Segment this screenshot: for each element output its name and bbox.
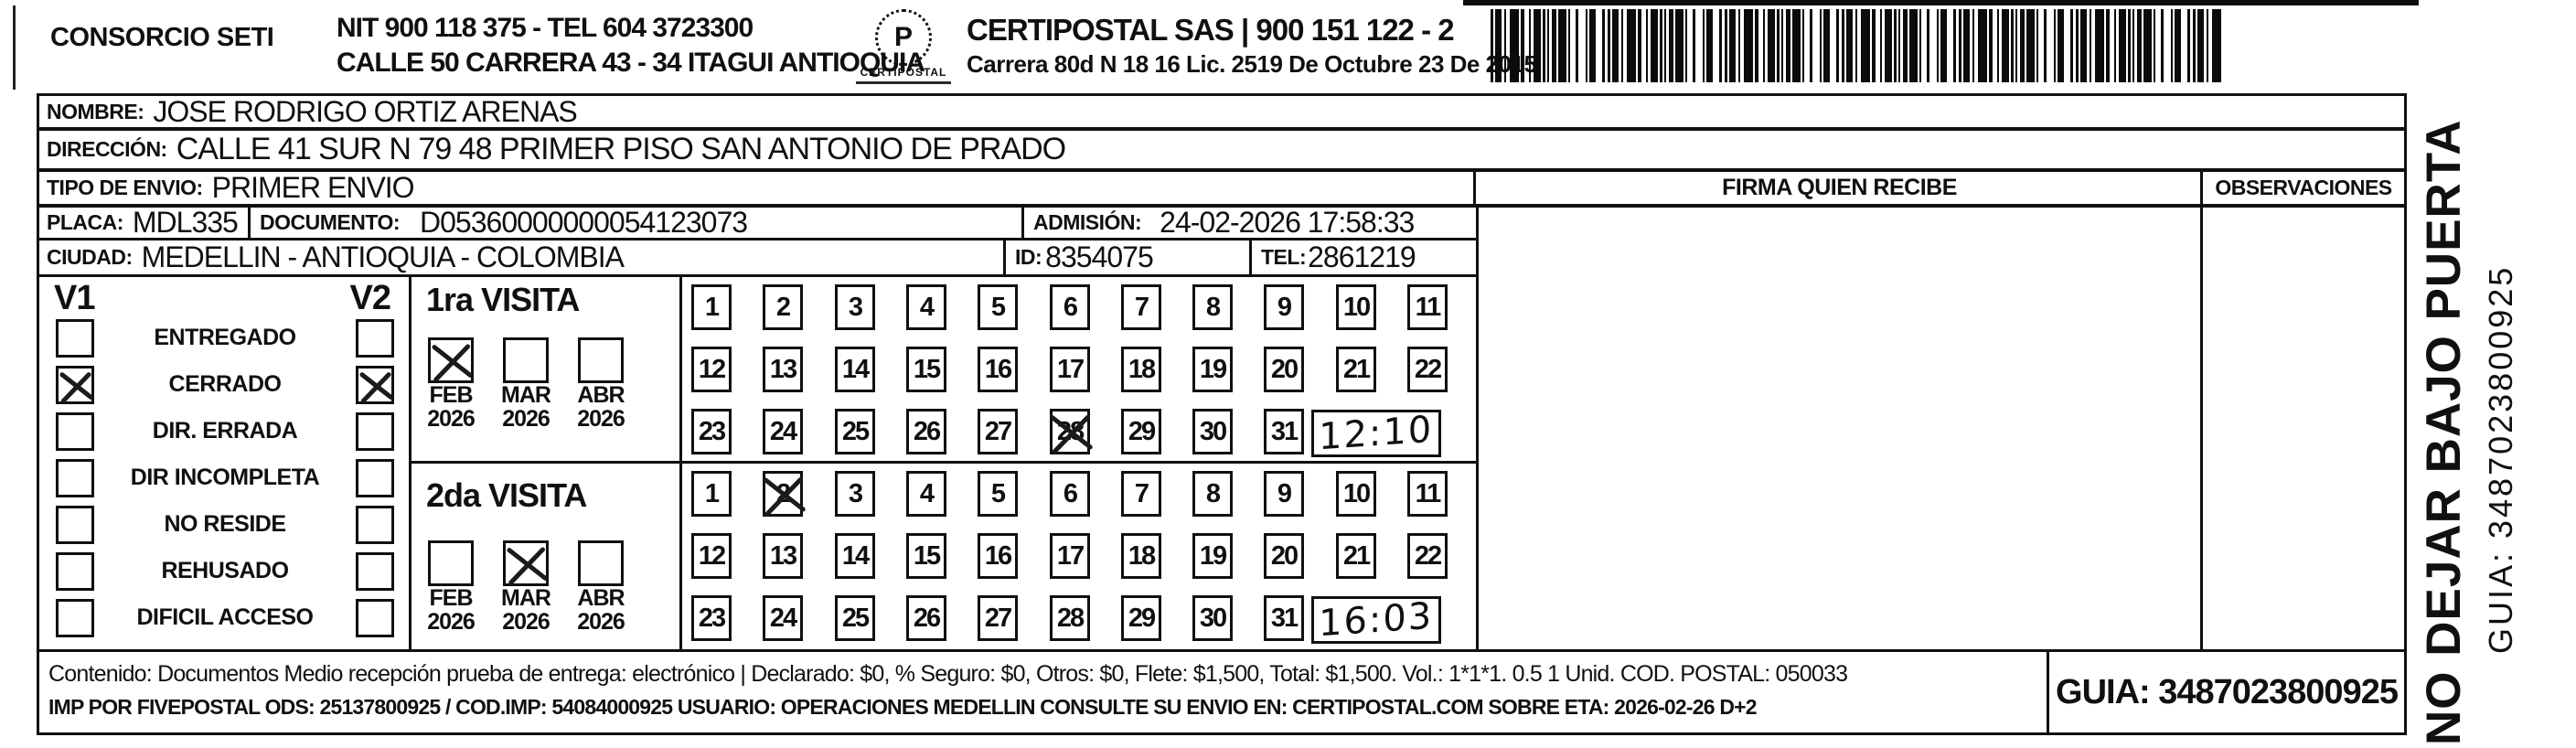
- status-rows: ENTREGADOCERRADODIR. ERRADADIR INCOMPLET…: [39, 315, 409, 641]
- visit-1-months-panel: 1ra VISITA FEB2026MAR2026ABR2026: [412, 277, 682, 461]
- placa-label: PLACA:: [47, 210, 123, 235]
- placa-cell: PLACA: MDL335: [37, 205, 251, 240]
- barcode-bar: [1646, 9, 1648, 82]
- day-box-31: 31: [1264, 409, 1304, 454]
- barcode-bar: [2137, 9, 2142, 82]
- barcode-bar: [2036, 9, 2038, 82]
- status-row-rehusado: REHUSADO: [39, 548, 409, 594]
- barcode-bar: [2015, 9, 2017, 82]
- barcode-bar: [2070, 9, 2073, 82]
- barcode-bar: [1909, 9, 1918, 82]
- barcode-bar: [1568, 9, 1570, 82]
- status-label-entregado: ENTREGADO: [94, 325, 356, 351]
- day-box-7: 7: [1121, 284, 1161, 330]
- day-box-8: 8: [1192, 284, 1233, 330]
- day-box-1: 1: [691, 284, 732, 330]
- day-box-15: 15: [906, 347, 946, 392]
- status-row-cerrado: CERRADO: [39, 361, 409, 408]
- ciudad-value: MEDELLIN - ANTIOQUIA - COLOMBIA: [142, 240, 624, 274]
- barcode-bar: [1768, 9, 1775, 82]
- observaciones-header-cell: OBSERVACIONES: [2200, 169, 2407, 207]
- barcode-bar: [1651, 9, 1658, 82]
- documento-value: D05360000000054123073: [420, 206, 747, 240]
- barcode-bar: [2212, 9, 2221, 82]
- day-box-23: 23: [691, 409, 732, 454]
- month-abr: ABR2026: [576, 540, 625, 634]
- barcode-bar: [1755, 9, 1758, 82]
- company-line: CERTIPOSTAL SAS | 900 151 122 - 2: [967, 13, 1454, 48]
- day-box-24: 24: [763, 409, 803, 454]
- day-box-27: 27: [978, 595, 1018, 641]
- day-box-23: 23: [691, 595, 732, 641]
- barcode-bar: [1898, 9, 1900, 82]
- barcode-bar: [1534, 9, 1541, 82]
- month-label: ABR: [576, 586, 625, 610]
- barcode-bar: [1669, 9, 1673, 82]
- day-box-17: 17: [1050, 533, 1090, 579]
- barcode-bar: [2044, 9, 2047, 82]
- barcode-bar: [1638, 9, 1641, 82]
- visit-time-box: 12:10: [1311, 410, 1441, 457]
- barcode-bar: [1978, 9, 1987, 82]
- barcode-bar: [1846, 9, 1853, 82]
- barcode-bar: [1744, 9, 1753, 82]
- barcode-bar: [2143, 9, 2152, 82]
- v1-checkbox-cerrado: [56, 366, 94, 404]
- month-mar: MAR2026: [501, 540, 550, 634]
- admision-cell: ADMISIÓN: 24-02-2026 17:58:33: [1021, 205, 1479, 240]
- v1-checkbox-no-reside: [56, 506, 94, 544]
- barcode-bar: [1725, 9, 1727, 82]
- month-checkbox-mar: [503, 540, 549, 586]
- barcode-bar: [1495, 9, 1502, 82]
- barcode-bar: [2193, 9, 2196, 82]
- scan-top-line: [1463, 0, 2419, 5]
- status-label-no-reside: NO RESIDE: [94, 511, 356, 538]
- day-box-26: 26: [906, 409, 946, 454]
- day-box-3: 3: [835, 471, 875, 517]
- day-box-30: 30: [1192, 595, 1233, 641]
- day-box-19: 19: [1192, 533, 1233, 579]
- v2-checkbox-dir-incompleta: [356, 459, 394, 497]
- guia-box: GUIA: 3487023800925: [2047, 649, 2407, 735]
- day-box-16: 16: [978, 533, 1018, 579]
- barcode-bar: [1855, 9, 1857, 82]
- barcode-bar: [1777, 9, 1780, 82]
- waybill-document: CONSORCIO SETI NIT 900 118 375 - TEL 604…: [0, 0, 2576, 748]
- v2-checkbox-cerrado: [356, 366, 394, 404]
- visit-2-months-row: FEB2026MAR2026ABR2026: [426, 540, 679, 634]
- v2-checkbox-no-reside: [356, 506, 394, 544]
- month-label: FEB: [426, 383, 476, 407]
- handwritten-time: 16:03: [1320, 595, 1434, 646]
- day-box-14: 14: [835, 347, 875, 392]
- barcode-bar: [1997, 9, 1999, 82]
- visit-1-days-grid: 1234567891011121314151617181920212223242…: [682, 277, 1476, 461]
- visit-time-box: 16:03: [1311, 596, 1441, 644]
- barcode-bar: [2002, 9, 2009, 82]
- barcode-bar: [2175, 9, 2181, 82]
- tel-label: TEL:: [1261, 245, 1306, 270]
- day-box-17: 17: [1050, 347, 1090, 392]
- v2-checkbox-dificil-acceso: [356, 599, 394, 637]
- day-box-15: 15: [906, 533, 946, 579]
- barcode-bar: [1823, 9, 1830, 82]
- v2-checkbox-rehusado: [356, 552, 394, 591]
- barcode-bar: [2080, 9, 2087, 82]
- barcode-bar: [2011, 9, 2014, 82]
- barcode-bar: [1963, 9, 1970, 82]
- firma-header: FIRMA QUIEN RECIBE: [1722, 175, 1957, 201]
- barcode-bar: [1792, 9, 1801, 82]
- status-label-dificil-acceso: DIFICIL ACCESO: [94, 604, 356, 631]
- admision-label: ADMISIÓN:: [1033, 210, 1141, 235]
- observaciones-header: OBSERVACIONES: [2215, 176, 2391, 200]
- barcode-bar: [1510, 9, 1519, 82]
- guia-box-value: GUIA: 3487023800925: [2056, 673, 2398, 712]
- status-panel: V1 V2 ENTREGADOCERRADODIR. ERRADADIR INC…: [37, 274, 412, 652]
- day-box-25: 25: [835, 409, 875, 454]
- day-box-18: 18: [1121, 533, 1161, 579]
- day-box-4: 4: [906, 471, 946, 517]
- firma-header-cell: FIRMA QUIEN RECIBE: [1473, 169, 2206, 207]
- barcode-bar: [1529, 9, 1531, 82]
- v1-checkbox-dificil-acceso: [56, 599, 94, 637]
- barcode-bar: [1521, 9, 1524, 82]
- status-label-dir-incompleta: DIR INCOMPLETA: [94, 465, 356, 491]
- placa-value: MDL335: [133, 206, 238, 240]
- barcode-bar: [1552, 9, 1556, 82]
- barcode-bar: [1885, 9, 1892, 82]
- barcode-bar: [1729, 9, 1736, 82]
- barcode-bar: [1706, 9, 1713, 82]
- v2-checkbox-entregado: [356, 319, 394, 358]
- barcode-bar: [2026, 9, 2035, 82]
- month-year: 2026: [426, 407, 476, 431]
- observaciones-body-cell: [2200, 205, 2407, 652]
- month-year: 2026: [576, 610, 625, 634]
- barcode-bar: [1894, 9, 1897, 82]
- day-box-14: 14: [835, 533, 875, 579]
- day-box-10: 10: [1336, 471, 1376, 517]
- barcode-bar: [1903, 9, 1908, 82]
- v2-header: V2: [350, 279, 390, 318]
- nombre-row: NOMBRE: JOSE RODRIGO ORTIZ ARENAS: [37, 93, 2407, 130]
- firma-body-cell: [1473, 205, 2206, 652]
- day-box-21: 21: [1336, 347, 1376, 392]
- day-box-9: 9: [1264, 284, 1304, 330]
- barcode-bar: [1612, 9, 1619, 82]
- month-abr: ABR2026: [576, 337, 625, 431]
- day-box-22: 22: [1407, 347, 1448, 392]
- barcode-bar: [1842, 9, 1844, 82]
- month-checkbox-abr: [578, 337, 624, 383]
- sender-address-line: CALLE 50 CARRERA 43 - 34 ITAGUI ANTIOQUI…: [337, 46, 925, 80]
- ciudad-cell: CIUDAD: MEDELLIN - ANTIOQUIA - COLOMBIA: [37, 238, 1006, 277]
- barcode-bar: [1972, 9, 1974, 82]
- v1-checkbox-dir-errada: [56, 412, 94, 451]
- tipo-envio-value: PRIMER ENVIO: [212, 171, 414, 205]
- certipostal-logo: P CERTIPOSTAL: [849, 9, 958, 84]
- day-box-5: 5: [978, 284, 1018, 330]
- v1-checkbox-dir-incompleta: [56, 459, 94, 497]
- barcode-bar: [1927, 9, 1929, 82]
- barcode-bar: [1586, 9, 1587, 82]
- barcode-bar: [1703, 9, 1705, 82]
- day-box-31: 31: [1264, 595, 1304, 641]
- month-checkbox-feb: [428, 337, 474, 383]
- day-box-26: 26: [906, 595, 946, 641]
- v2-checkbox-dir-errada: [356, 412, 394, 451]
- month-mar: MAR2026: [501, 337, 550, 431]
- logo-glyph: P: [894, 22, 913, 53]
- barcode-bar: [1719, 9, 1722, 82]
- barcode-bar: [2187, 9, 2190, 82]
- side-guia-text: GUIA: 3487023800925: [2482, 169, 2526, 654]
- month-label: FEB: [426, 586, 476, 610]
- day-box-30: 30: [1192, 409, 1233, 454]
- tipo-envio-cell: TIPO DE ENVIO: PRIMER ENVIO: [37, 169, 1479, 207]
- barcode-bar: [1880, 9, 1882, 82]
- day-box-4: 4: [906, 284, 946, 330]
- direccion-value: CALLE 41 SUR N 79 48 PRIMER PISO SAN ANT…: [176, 132, 1065, 167]
- day-box-9: 9: [1264, 471, 1304, 517]
- status-panel-headers: V1 V2: [39, 277, 409, 318]
- consorcio-name: CONSORCIO SETI: [50, 23, 273, 53]
- barcode-bar: [1861, 9, 1870, 82]
- day-box-24: 24: [763, 595, 803, 641]
- barcode-bar: [2106, 9, 2110, 82]
- day-box-20: 20: [1264, 347, 1304, 392]
- status-row-no-reside: NO RESIDE: [39, 501, 409, 548]
- day-box-11: 11: [1407, 284, 1448, 330]
- day-box-25: 25: [835, 595, 875, 641]
- status-row-dir-errada: DIR. ERRADA: [39, 408, 409, 454]
- day-box-28: 28: [1050, 595, 1090, 641]
- month-label: ABR: [576, 383, 625, 407]
- barcode-bar: [1660, 9, 1662, 82]
- barcode-bar: [1685, 9, 1687, 82]
- day-box-19: 19: [1192, 347, 1233, 392]
- day-box-28: 28: [1050, 409, 1090, 454]
- ciudad-label: CIUDAD:: [47, 245, 133, 270]
- v1-checkbox-rehusado: [56, 552, 94, 591]
- month-year: 2026: [501, 407, 550, 431]
- barcode-bar: [2020, 9, 2025, 82]
- v1-checkbox-entregado: [56, 319, 94, 358]
- barcode: [1491, 9, 2228, 82]
- day-box-11: 11: [1407, 471, 1448, 517]
- day-box-12: 12: [691, 533, 732, 579]
- day-box-21: 21: [1336, 533, 1376, 579]
- barcode-bar: [1491, 9, 1493, 82]
- visit-2-months-panel: 2da VISITA FEB2026MAR2026ABR2026: [412, 464, 682, 649]
- barcode-bar: [1589, 9, 1596, 82]
- visit-2-title: 2da VISITA: [426, 476, 679, 515]
- day-box-2: 2: [763, 471, 803, 517]
- day-box-5: 5: [978, 471, 1018, 517]
- barcode-bar: [1937, 9, 1939, 82]
- visit-1-section: 1ra VISITA FEB2026MAR2026ABR2026 1234567…: [409, 274, 1479, 464]
- barcode-bar: [1608, 9, 1610, 82]
- day-box-13: 13: [763, 533, 803, 579]
- sender-nit-line: NIT 900 118 375 - TEL 604 3723300: [337, 11, 753, 46]
- nombre-value: JOSE RODRIGO ORTIZ ARENAS: [153, 95, 576, 129]
- visit-2-section: 2da VISITA FEB2026MAR2026ABR2026 1234567…: [409, 461, 1479, 652]
- id-label: ID:: [1015, 245, 1042, 270]
- direccion-row: DIRECCIÓN: CALLE 41 SUR N 79 48 PRIMER P…: [37, 128, 2407, 171]
- barcode-bar: [1953, 9, 1956, 82]
- barcode-bar: [1959, 9, 1961, 82]
- barcode-bar: [1504, 9, 1506, 82]
- scan-edge-mark: [13, 5, 16, 90]
- month-label: MAR: [501, 586, 550, 610]
- barcode-bar: [1664, 9, 1666, 82]
- day-box-16: 16: [978, 347, 1018, 392]
- side-warning-text: NO DEJAR BAJO PUERTA: [2416, 105, 2482, 745]
- day-box-7: 7: [1121, 471, 1161, 517]
- visit-1-title: 1ra VISITA: [426, 281, 679, 319]
- month-year: 2026: [501, 610, 550, 634]
- company-address: Carrera 80d N 18 16 Lic. 2519 De Octubre…: [967, 50, 1536, 79]
- status-row-dificil-acceso: DIFICIL ACCESO: [39, 594, 409, 641]
- barcode-bar: [2128, 9, 2131, 82]
- day-box-6: 6: [1050, 284, 1090, 330]
- barcode-bar: [1543, 9, 1545, 82]
- status-label-dir-errada: DIR. ERRADA: [94, 418, 356, 444]
- day-box-20: 20: [1264, 533, 1304, 579]
- barcode-bar: [1989, 9, 1993, 82]
- visit-1-months-row: FEB2026MAR2026ABR2026: [426, 337, 679, 431]
- barcode-bar: [2197, 9, 2204, 82]
- documento-cell: DOCUMENTO: D05360000000054123073: [248, 205, 1024, 240]
- barcode-bar: [2161, 9, 2164, 82]
- barcode-bar: [2058, 9, 2064, 82]
- day-box-27: 27: [978, 409, 1018, 454]
- barcode-bar: [1940, 9, 1947, 82]
- barcode-bar: [1919, 9, 1921, 82]
- day-box-13: 13: [763, 347, 803, 392]
- barcode-bar: [1810, 9, 1812, 82]
- barcode-bar: [2171, 9, 2173, 82]
- day-box-8: 8: [1192, 471, 1233, 517]
- admision-value: 24-02-2026 17:58:33: [1160, 206, 1414, 240]
- barcode-bar: [1576, 9, 1578, 82]
- day-box-12: 12: [691, 347, 732, 392]
- barcode-bar: [1786, 9, 1790, 82]
- month-feb: FEB2026: [426, 337, 476, 431]
- barcode-bar: [1802, 9, 1804, 82]
- day-box-3: 3: [835, 284, 875, 330]
- barcode-bar: [1763, 9, 1765, 82]
- barcode-bar: [1738, 9, 1740, 82]
- barcode-bar: [1627, 9, 1636, 82]
- barcode-bar: [2090, 9, 2091, 82]
- barcode-bar: [1781, 9, 1783, 82]
- barcode-bar: [2114, 9, 2116, 82]
- barcode-bar: [1547, 9, 1549, 82]
- barcode-bar: [2054, 9, 2056, 82]
- month-feb: FEB2026: [426, 540, 476, 634]
- barcode-bar: [1836, 9, 1839, 82]
- logo-wordmark: CERTIPOSTAL: [849, 66, 958, 79]
- barcode-bar: [2095, 9, 2104, 82]
- day-box-2: 2: [763, 284, 803, 330]
- status-row-dir-incompleta: DIR INCOMPLETA: [39, 454, 409, 501]
- barcode-bar: [1693, 9, 1695, 82]
- status-label-cerrado: CERRADO: [94, 371, 356, 398]
- tel-cell: TEL: 2861219: [1249, 238, 1479, 277]
- barcode-bar: [1820, 9, 1822, 82]
- barcode-bar: [2076, 9, 2079, 82]
- day-box-18: 18: [1121, 347, 1161, 392]
- id-cell: ID: 8354075: [1003, 238, 1252, 277]
- barcode-bar: [2207, 9, 2208, 82]
- barcode-bar: [1675, 9, 1683, 82]
- month-year: 2026: [426, 610, 476, 634]
- v1-header: V1: [54, 279, 94, 318]
- day-box-29: 29: [1121, 409, 1161, 454]
- status-label-rehusado: REHUSADO: [94, 558, 356, 584]
- id-value: 8354075: [1045, 240, 1153, 274]
- day-box-29: 29: [1121, 595, 1161, 641]
- tipo-envio-label: TIPO DE ENVIO:: [47, 176, 203, 200]
- barcode-bar: [1558, 9, 1566, 82]
- barcode-bar: [1621, 9, 1623, 82]
- certipostal-logo-icon: P: [875, 9, 932, 66]
- day-box-10: 10: [1336, 284, 1376, 330]
- barcode-bar: [2132, 9, 2134, 82]
- month-checkbox-abr: [578, 540, 624, 586]
- month-checkbox-feb: [428, 540, 474, 586]
- barcode-bar: [2154, 9, 2155, 82]
- tel-value: 2861219: [1308, 240, 1416, 274]
- month-label: MAR: [501, 383, 550, 407]
- status-row-entregado: ENTREGADO: [39, 315, 409, 361]
- barcode-bar: [2119, 9, 2126, 82]
- handwritten-time: 12:10: [1320, 409, 1434, 459]
- day-box-22: 22: [1407, 533, 1448, 579]
- month-checkbox-mar: [503, 337, 549, 383]
- barcode-bar: [1872, 9, 1876, 82]
- visit-2-days-grid: 1234567891011121314151617181920212223242…: [682, 464, 1476, 649]
- day-box-1: 1: [691, 471, 732, 517]
- day-box-6: 6: [1050, 471, 1090, 517]
- nombre-label: NOMBRE:: [47, 100, 144, 124]
- barcode-bar: [1602, 9, 1605, 82]
- documento-label: DOCUMENTO:: [260, 210, 400, 235]
- logo-tagline: [856, 81, 951, 84]
- month-year: 2026: [576, 407, 625, 431]
- direccion-label: DIRECCIÓN:: [47, 137, 167, 162]
